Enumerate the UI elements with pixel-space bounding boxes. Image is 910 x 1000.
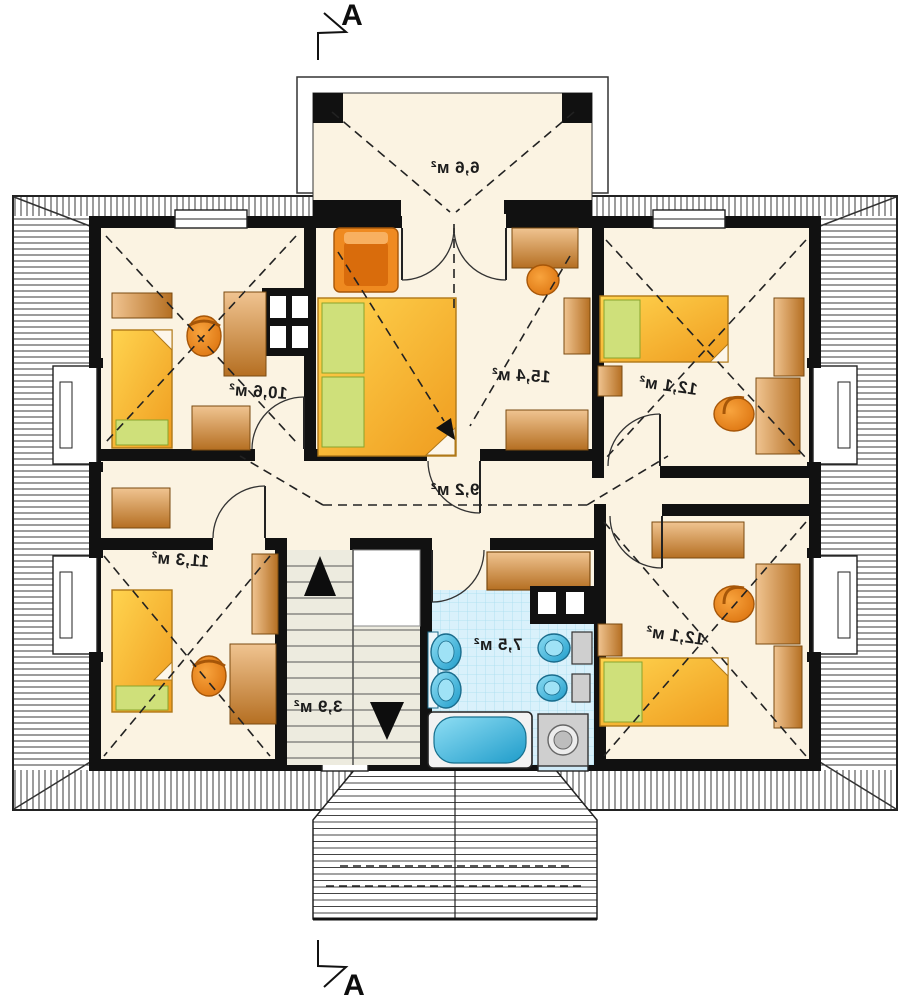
wardrobe xyxy=(506,410,588,450)
bed xyxy=(600,658,728,726)
balcony xyxy=(297,77,608,222)
area-label-staircase: 3,9 м² xyxy=(294,697,343,717)
desk xyxy=(230,644,276,724)
section-marker-bottom-line xyxy=(318,940,346,987)
bath-duct-shaft xyxy=(530,586,600,624)
bed xyxy=(112,590,172,712)
area-label-bedroom-center: 15,4 м² xyxy=(491,364,551,387)
desk xyxy=(756,564,800,644)
window-top-right xyxy=(653,210,725,228)
tall-cabinet xyxy=(252,554,278,634)
floor-plan-drawing xyxy=(0,0,910,1000)
wall-shelf-grid xyxy=(262,288,316,356)
window-bay-right-1 xyxy=(807,358,857,472)
double-bed xyxy=(318,298,456,456)
window-top-left xyxy=(175,210,247,228)
desk-stool xyxy=(527,265,559,295)
bathtub xyxy=(428,712,532,768)
porch-roof xyxy=(313,769,597,919)
wardrobe xyxy=(652,522,744,558)
desk xyxy=(756,378,800,454)
armchair xyxy=(334,228,398,292)
bed xyxy=(112,330,172,448)
bedside-table xyxy=(564,298,590,354)
window-bay-right-2 xyxy=(807,548,857,662)
area-label-bathroom: 7,5 м² xyxy=(474,635,523,655)
area-label-balcony: 6,6 м² xyxy=(431,158,480,178)
section-marker-bottom-letter: A xyxy=(343,969,365,1000)
window-bay-left-1 xyxy=(53,358,103,472)
floor-plan-canvas: 6,6 м² 10,6 м² 15,4 м² 12,1 м² 9,2 м² 11… xyxy=(0,0,910,1000)
desk xyxy=(224,292,266,376)
window-bay-left-2 xyxy=(53,548,103,662)
bedside-table xyxy=(598,624,622,656)
dresser xyxy=(192,406,250,450)
desk xyxy=(512,228,578,268)
washing-machine xyxy=(538,714,588,766)
area-label-bedroom-bottom-left: 11,3 м² xyxy=(150,548,209,572)
wardrobe xyxy=(774,298,804,376)
desk-chair xyxy=(714,586,754,622)
staircase xyxy=(287,550,420,765)
section-marker-top-letter: A xyxy=(341,0,363,33)
balcony-post xyxy=(562,93,592,123)
bath-cabinet xyxy=(487,552,590,590)
desk-chair xyxy=(714,397,754,431)
area-label-bedroom-top-left: 10,6 м² xyxy=(228,380,288,404)
area-label-hall: 9,2 м² xyxy=(431,480,480,500)
wardrobe-2 xyxy=(774,646,802,728)
desk-chair xyxy=(192,656,226,696)
dresser xyxy=(112,488,170,528)
bedside-table xyxy=(598,366,622,396)
balcony-post xyxy=(313,93,343,123)
